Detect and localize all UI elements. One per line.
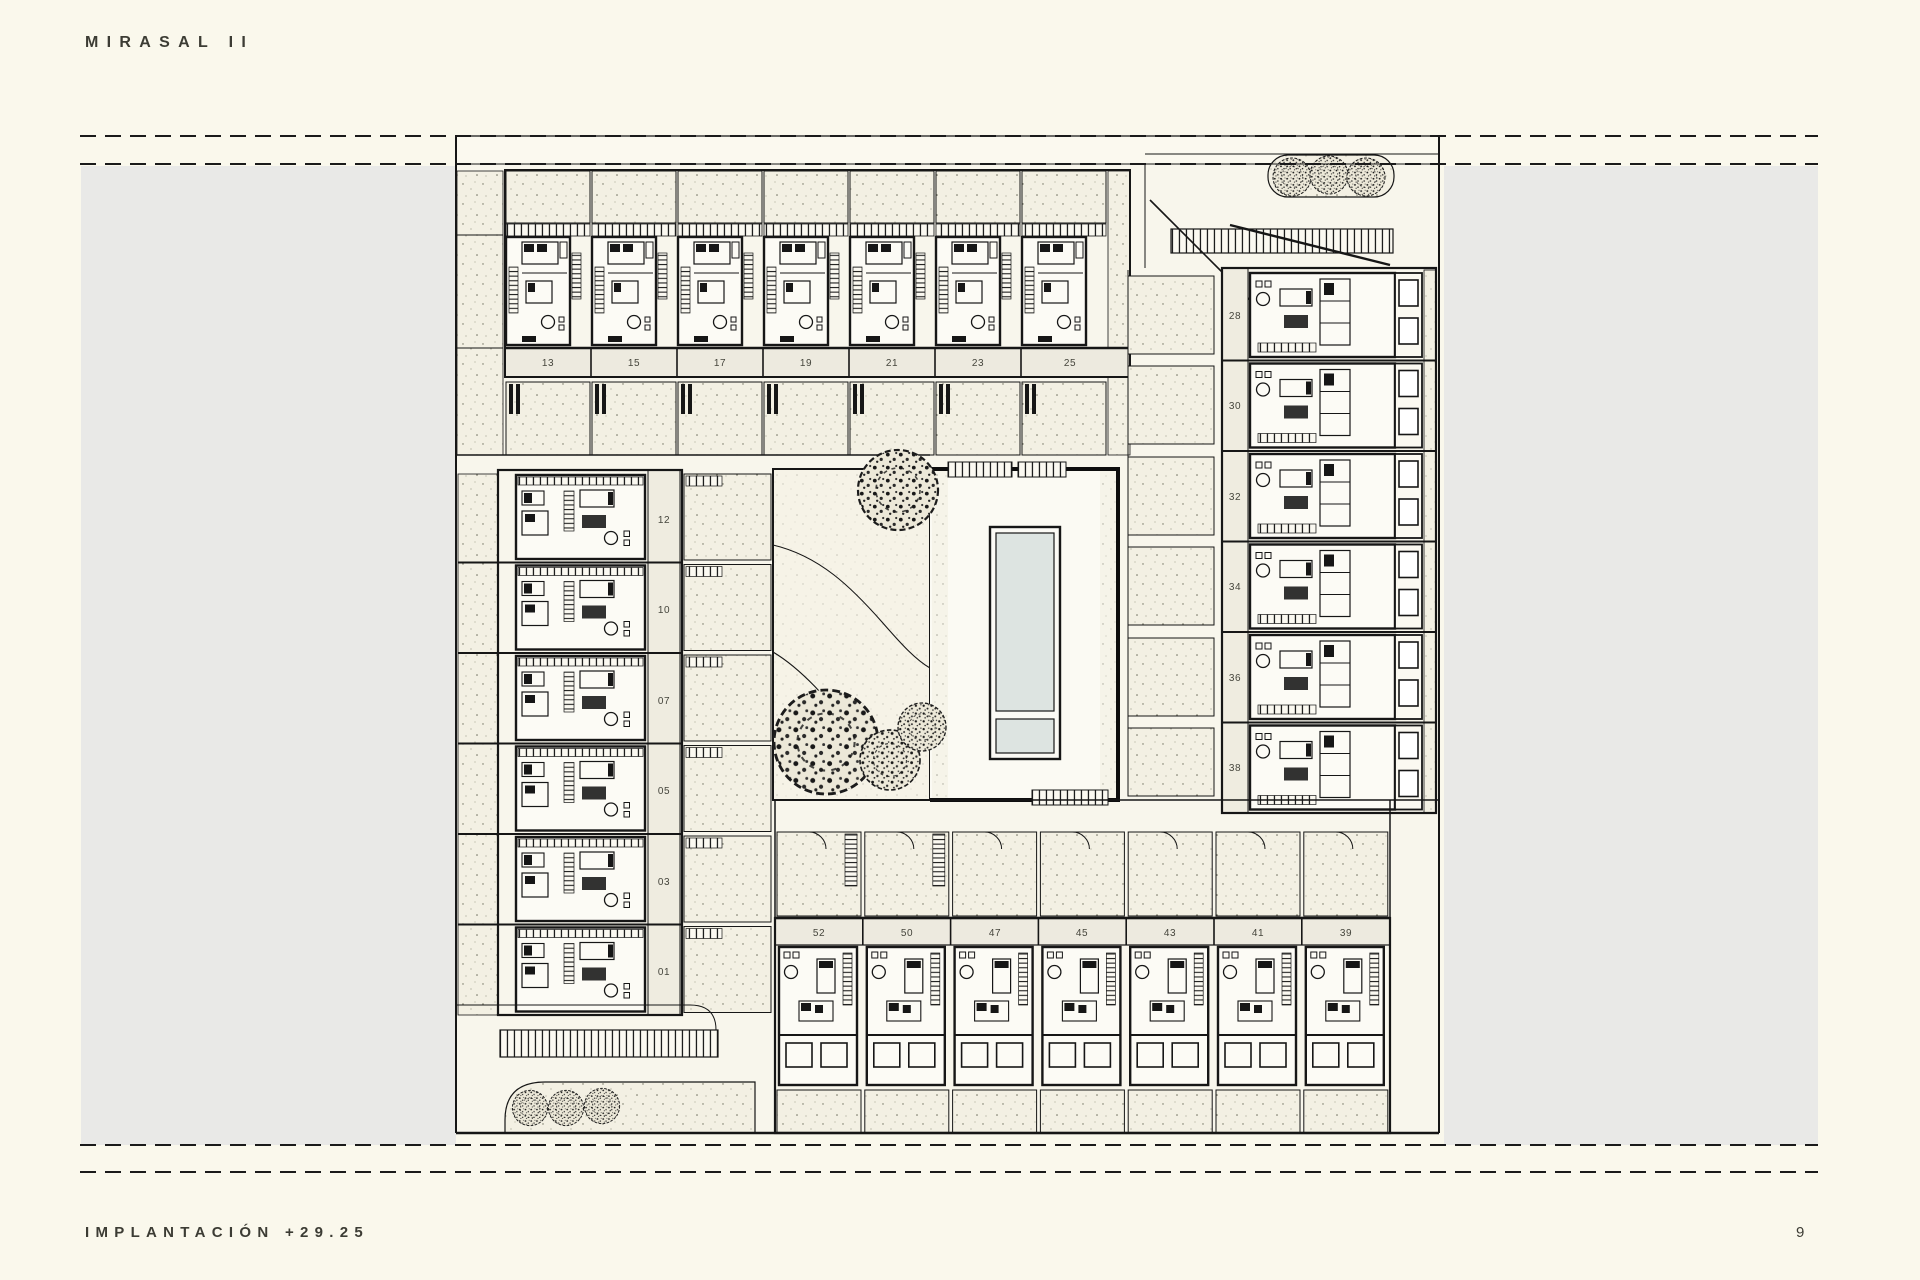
pool bbox=[990, 527, 1060, 759]
unit-number: 34 bbox=[1229, 582, 1241, 593]
top-row-gardens bbox=[506, 382, 1106, 455]
unit-number: 12 bbox=[658, 515, 670, 526]
unit-number: 23 bbox=[972, 358, 984, 369]
drawing-caption: IMPLANTACIÓN +29.25 bbox=[85, 1224, 369, 1241]
unit-number: 28 bbox=[1229, 311, 1241, 322]
unit-number: 50 bbox=[901, 928, 913, 939]
unit-number: 25 bbox=[1064, 358, 1076, 369]
left-gray-panel bbox=[81, 166, 456, 1145]
unit-number: 13 bbox=[542, 358, 554, 369]
tree bbox=[548, 1090, 583, 1125]
bottom-entry-gardens bbox=[777, 832, 1388, 916]
top-number-band: 13 15 17 19 21 23 25 bbox=[505, 348, 1130, 377]
pool-terrace bbox=[930, 462, 1118, 805]
bottom-patios bbox=[777, 1090, 1388, 1133]
site-plan: 13 15 17 19 21 23 25 bbox=[0, 0, 1920, 1280]
parking-strip bbox=[1171, 229, 1393, 253]
tree bbox=[898, 703, 946, 751]
right-gray-panel bbox=[1444, 166, 1818, 1145]
unit-number: 36 bbox=[1229, 673, 1241, 684]
unit-number: 03 bbox=[658, 877, 670, 888]
unit-number: 19 bbox=[800, 358, 812, 369]
unit-number: 30 bbox=[1229, 401, 1241, 412]
unit-number: 41 bbox=[1252, 928, 1264, 939]
unit-number: 39 bbox=[1340, 928, 1352, 939]
unit-number: 05 bbox=[658, 786, 670, 797]
unit-number: 52 bbox=[813, 928, 825, 939]
unit-number: 32 bbox=[1229, 492, 1241, 503]
unit-number: 43 bbox=[1164, 928, 1176, 939]
unit-number: 10 bbox=[658, 605, 670, 616]
bottom-row-units bbox=[779, 947, 1384, 1085]
unit-number: 21 bbox=[886, 358, 898, 369]
unit-number: 07 bbox=[658, 696, 670, 707]
bottom-number-band: 52 50 47 45 43 41 39 bbox=[775, 918, 1390, 945]
unit-number: 17 bbox=[714, 358, 726, 369]
tree bbox=[584, 1088, 619, 1123]
parking-strip bbox=[500, 1030, 718, 1057]
drawing-sheet: MIRASAL II bbox=[0, 0, 1920, 1280]
tree bbox=[512, 1090, 547, 1125]
top-row-block: 13 15 17 19 21 23 25 bbox=[456, 170, 1130, 455]
plan-area: 13 15 17 19 21 23 25 bbox=[456, 136, 1439, 1133]
unit-number: 45 bbox=[1076, 928, 1088, 939]
unit-number: 47 bbox=[989, 928, 1001, 939]
unit-number: 01 bbox=[658, 967, 670, 978]
tree bbox=[1310, 156, 1348, 194]
central-courtyard bbox=[773, 450, 1118, 805]
tree bbox=[858, 450, 938, 530]
page-number: 9 bbox=[1796, 1224, 1804, 1241]
right-column-block: 28 30 32 34 36 38 bbox=[1222, 268, 1436, 813]
unit-number: 38 bbox=[1229, 763, 1241, 774]
tree bbox=[774, 690, 878, 794]
unit-number: 15 bbox=[628, 358, 640, 369]
